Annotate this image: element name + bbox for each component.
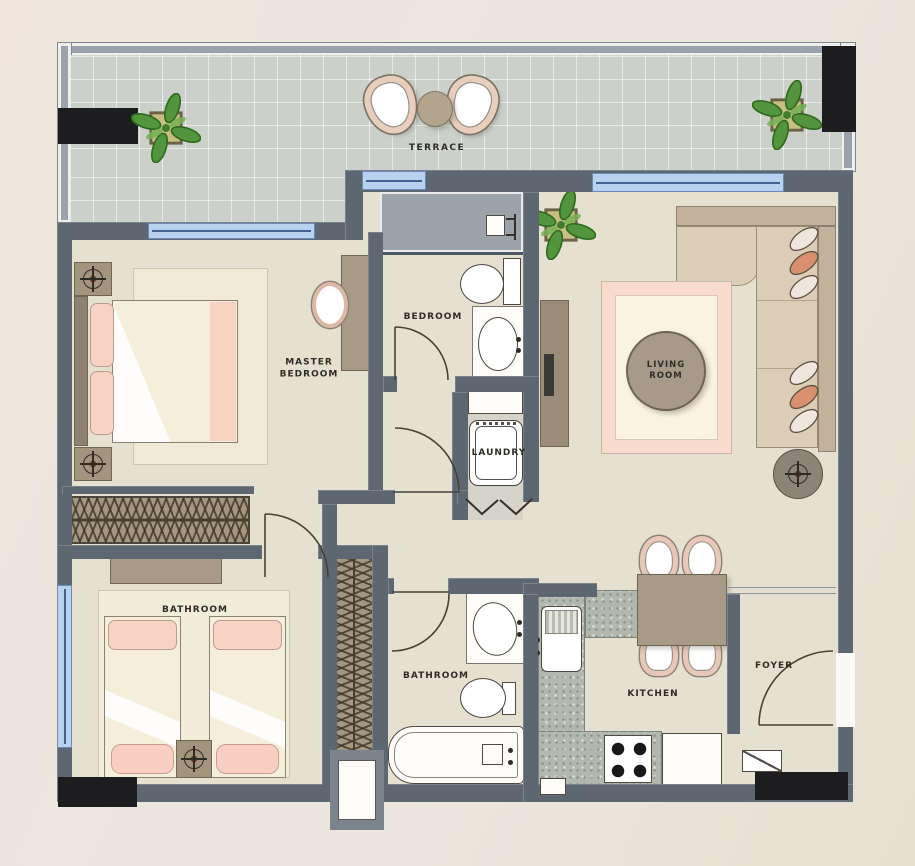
room-label-living-room: LIVING ROOM xyxy=(638,360,694,382)
shaft-inner xyxy=(338,760,376,820)
faucet-icon xyxy=(516,348,521,353)
shoe-cabinet xyxy=(742,750,782,772)
wall-bedroom2-north xyxy=(57,545,262,559)
sofa-seam xyxy=(757,300,817,301)
sofa-chaise xyxy=(676,226,760,286)
wall-hall-south xyxy=(457,490,468,504)
room-label-laundry: LAUNDRY xyxy=(472,448,527,460)
column xyxy=(822,46,856,132)
wardrobe xyxy=(62,496,250,544)
window xyxy=(362,171,426,190)
blanket xyxy=(216,744,279,774)
toilet-tank xyxy=(503,258,521,305)
wall-master-east xyxy=(368,232,383,498)
dining-table xyxy=(637,574,727,646)
faucet-icon xyxy=(508,760,513,765)
wall-bedroom2-east xyxy=(322,504,337,785)
wall-bedroom-south xyxy=(455,376,539,392)
column xyxy=(755,772,848,800)
wall-bottom xyxy=(57,784,853,802)
wardrobe xyxy=(334,557,374,753)
toilet xyxy=(460,264,504,304)
wall-master-south xyxy=(62,486,254,494)
pillow xyxy=(90,371,114,435)
wall-kitchen-west xyxy=(523,594,538,802)
column xyxy=(58,108,138,144)
kitchen-counter xyxy=(585,590,640,638)
faucet-icon xyxy=(517,620,522,625)
faucet-icon xyxy=(516,337,521,342)
terrace-table xyxy=(417,91,453,127)
sofa-back xyxy=(676,206,836,226)
window xyxy=(57,585,72,748)
laundry-opening xyxy=(468,390,523,414)
fridge xyxy=(662,733,722,785)
toilet xyxy=(460,678,506,718)
room-label-terrace: TERRACE xyxy=(409,143,465,155)
foyer-threshold xyxy=(723,587,836,594)
wall-hall-south xyxy=(318,490,395,504)
entry-opening xyxy=(836,653,855,727)
room-label-bedroom: BEDROOM xyxy=(404,312,463,324)
headboard xyxy=(74,296,88,446)
plant-icon xyxy=(131,93,201,163)
sofa-pillows-icon xyxy=(784,226,824,300)
faucet-icon xyxy=(508,748,513,753)
floor-plan: TERRACE MASTER BEDROOM BEDROOM LIVING RO… xyxy=(0,0,915,866)
sink-drainboard xyxy=(545,610,578,634)
dresser xyxy=(110,556,222,584)
lamp-icon xyxy=(83,454,103,474)
room-label-bathroom: BATHROOM xyxy=(403,671,469,683)
stove xyxy=(604,735,652,783)
lamp-icon xyxy=(788,464,808,484)
shower-icon xyxy=(486,215,505,236)
window xyxy=(148,223,315,239)
washbasin xyxy=(478,317,518,371)
pillow xyxy=(108,620,177,650)
wall-foyer-west xyxy=(727,594,740,734)
lamp-icon xyxy=(83,269,103,289)
terrace-floor-left xyxy=(70,170,347,224)
column xyxy=(58,777,137,807)
bed-runner xyxy=(210,302,236,441)
wall-bedroom-south xyxy=(383,376,397,392)
wall-bathroom-west xyxy=(372,545,388,785)
sofa-pillows-icon xyxy=(784,360,824,434)
wall-bathroom-north xyxy=(388,578,394,594)
pillow xyxy=(213,620,282,650)
window xyxy=(592,173,784,192)
room-label-kitchen: KITCHEN xyxy=(627,689,678,701)
bathtub xyxy=(388,726,524,784)
lamp-icon xyxy=(184,749,204,769)
blanket xyxy=(111,744,174,774)
vent xyxy=(540,778,566,795)
room-label-master-bedroom: MASTER BEDROOM xyxy=(267,357,351,380)
faucet-icon xyxy=(517,632,522,637)
room-label-foyer: FOYER xyxy=(755,661,793,673)
room-label-second-bedroom: BATHROOM xyxy=(162,605,228,617)
plant-icon xyxy=(752,80,822,150)
desk-chair xyxy=(312,282,348,328)
tub-faucet xyxy=(482,744,503,765)
tv-icon xyxy=(544,354,554,396)
pillow xyxy=(90,303,114,367)
